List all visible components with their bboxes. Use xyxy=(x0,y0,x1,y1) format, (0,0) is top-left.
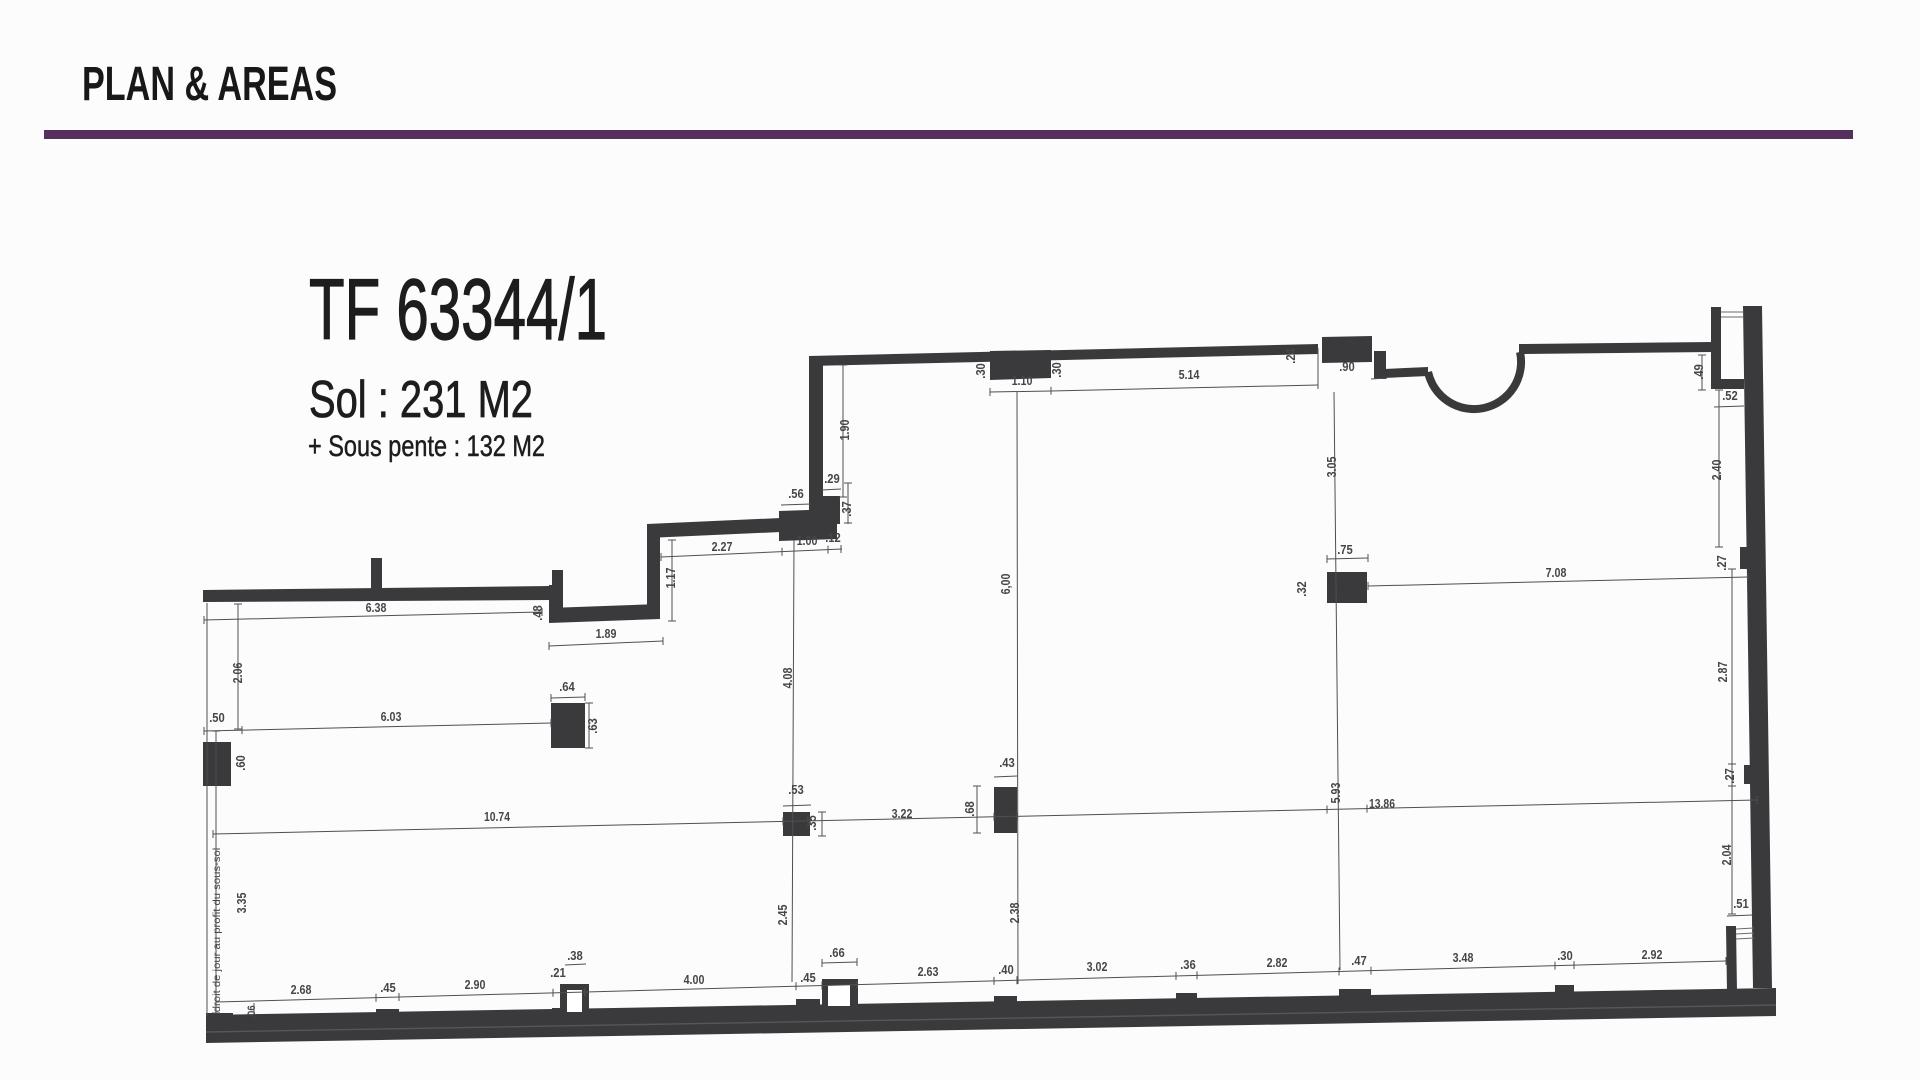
svg-text:.43: .43 xyxy=(999,755,1015,770)
svg-text:6.03: 6.03 xyxy=(381,709,402,724)
svg-text:.36: .36 xyxy=(1180,957,1196,972)
svg-text:.27: .27 xyxy=(1714,555,1729,571)
svg-text:3.22: 3.22 xyxy=(892,806,913,821)
svg-text:2.82: 2.82 xyxy=(1267,955,1288,970)
svg-text:.32: .32 xyxy=(1294,581,1309,597)
svg-text:.68: .68 xyxy=(962,801,977,817)
svg-text:5.14: 5.14 xyxy=(1179,367,1200,382)
svg-text:2.06: 2.06 xyxy=(230,663,245,684)
svg-text:3.48: 3.48 xyxy=(1453,950,1474,965)
svg-text:Sol : 231 M2: Sol : 231 M2 xyxy=(309,371,533,429)
svg-text:.29: .29 xyxy=(824,471,840,486)
svg-text:TF 63344/1: TF 63344/1 xyxy=(309,262,607,358)
svg-text:.12: .12 xyxy=(825,530,841,545)
svg-text:.51: .51 xyxy=(1733,896,1749,911)
svg-text:.64: .64 xyxy=(559,679,575,694)
svg-text:2.40: 2.40 xyxy=(1709,460,1724,481)
svg-text:2.92: 2.92 xyxy=(1642,947,1663,962)
svg-text:.45: .45 xyxy=(380,980,396,995)
svg-text:.27: .27 xyxy=(1722,768,1737,784)
svg-text:1.90: 1.90 xyxy=(837,420,852,441)
svg-text:.47: .47 xyxy=(1351,953,1367,968)
svg-text:.21: .21 xyxy=(550,965,566,980)
svg-text:.38: .38 xyxy=(567,948,583,963)
svg-text:5.93: 5.93 xyxy=(1328,783,1343,804)
svg-text:.48: .48 xyxy=(530,605,545,621)
svg-text:.66: .66 xyxy=(829,945,845,960)
svg-text:2.87: 2.87 xyxy=(1715,662,1730,683)
svg-text:.06: .06 xyxy=(246,1005,258,1018)
svg-text:.75: .75 xyxy=(1337,542,1353,557)
svg-text:1.89: 1.89 xyxy=(596,626,617,641)
svg-text:.35: .35 xyxy=(804,815,819,831)
svg-text:.30: .30 xyxy=(1557,948,1573,963)
svg-text:.30: .30 xyxy=(1049,362,1064,378)
svg-text:.53: .53 xyxy=(788,782,804,797)
svg-text:droit de jour au profit du sou: droit de jour au profit du sous-sol xyxy=(212,848,223,1013)
svg-text:2.38: 2.38 xyxy=(1007,903,1022,924)
svg-text:1.00: 1.00 xyxy=(797,533,818,548)
svg-text:.49: .49 xyxy=(1691,364,1706,380)
svg-text:.45: .45 xyxy=(800,970,816,985)
svg-text:2.45: 2.45 xyxy=(775,905,790,926)
svg-text:.50: .50 xyxy=(209,710,225,725)
svg-text:4.00: 4.00 xyxy=(684,972,705,987)
svg-text:.56: .56 xyxy=(788,486,804,501)
svg-text:.90: .90 xyxy=(1339,359,1355,374)
svg-text:.30: .30 xyxy=(973,363,988,379)
svg-text:+ Sous pente : 132 M2: + Sous pente : 132 M2 xyxy=(308,430,545,463)
svg-text:2.68: 2.68 xyxy=(291,982,312,997)
svg-text:.24: .24 xyxy=(1283,348,1298,364)
svg-text:.52: .52 xyxy=(1722,388,1738,403)
svg-text:3.02: 3.02 xyxy=(1087,959,1108,974)
svg-text:.60: .60 xyxy=(233,755,248,771)
svg-text:PLAN & AREAS: PLAN & AREAS xyxy=(82,58,337,111)
svg-text:4.08: 4.08 xyxy=(780,668,795,689)
svg-text:6.38: 6.38 xyxy=(366,600,387,615)
svg-text:13.86: 13.86 xyxy=(1369,796,1395,811)
svg-text:2.90: 2.90 xyxy=(465,977,486,992)
svg-text:2.04: 2.04 xyxy=(1719,844,1734,865)
svg-text:3.35: 3.35 xyxy=(234,893,249,914)
svg-text:.63: .63 xyxy=(585,718,600,734)
svg-text:.37: .37 xyxy=(839,501,854,517)
svg-text:2.63: 2.63 xyxy=(918,964,939,979)
svg-text:2.27: 2.27 xyxy=(712,539,733,554)
svg-text:6,00: 6,00 xyxy=(998,574,1013,595)
svg-text:10.74: 10.74 xyxy=(484,809,511,824)
svg-text:.40: .40 xyxy=(998,962,1014,977)
svg-text:1.10: 1.10 xyxy=(1012,373,1033,388)
svg-text:3.05: 3.05 xyxy=(1324,457,1339,478)
svg-text:1.17: 1.17 xyxy=(663,568,678,589)
svg-text:7.08: 7.08 xyxy=(1546,565,1567,580)
